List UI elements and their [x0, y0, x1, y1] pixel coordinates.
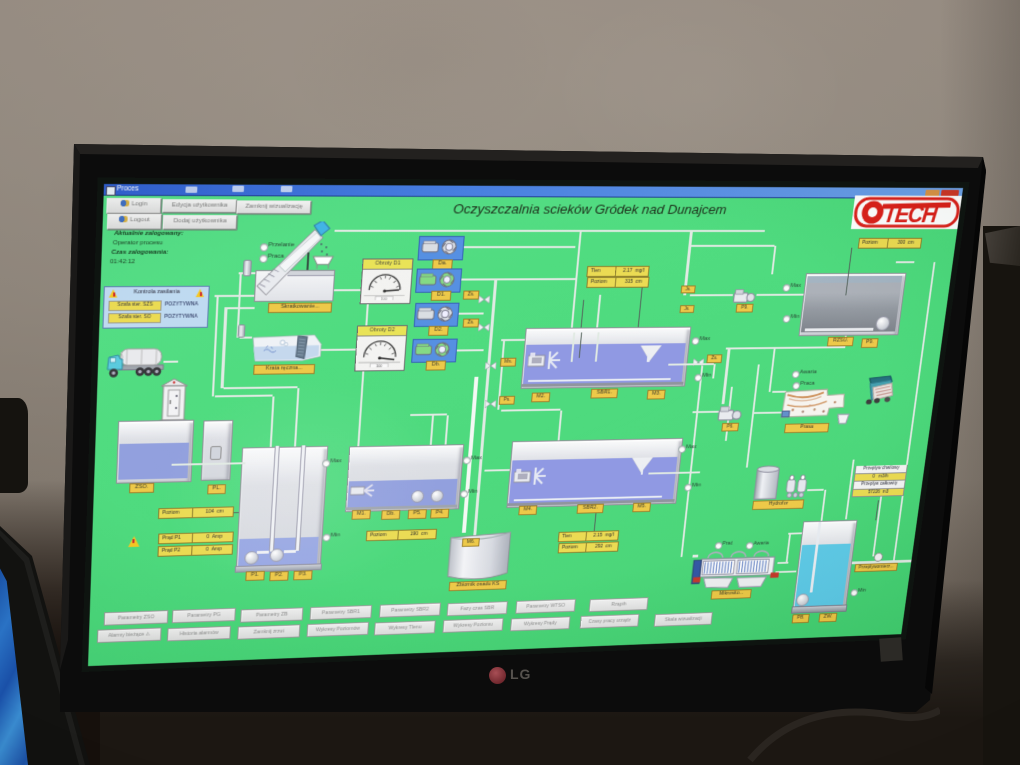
svg-text:100: 100: [381, 296, 388, 301]
svg-text:TECH: TECH: [882, 203, 940, 228]
svg-text:100: 100: [376, 363, 383, 368]
